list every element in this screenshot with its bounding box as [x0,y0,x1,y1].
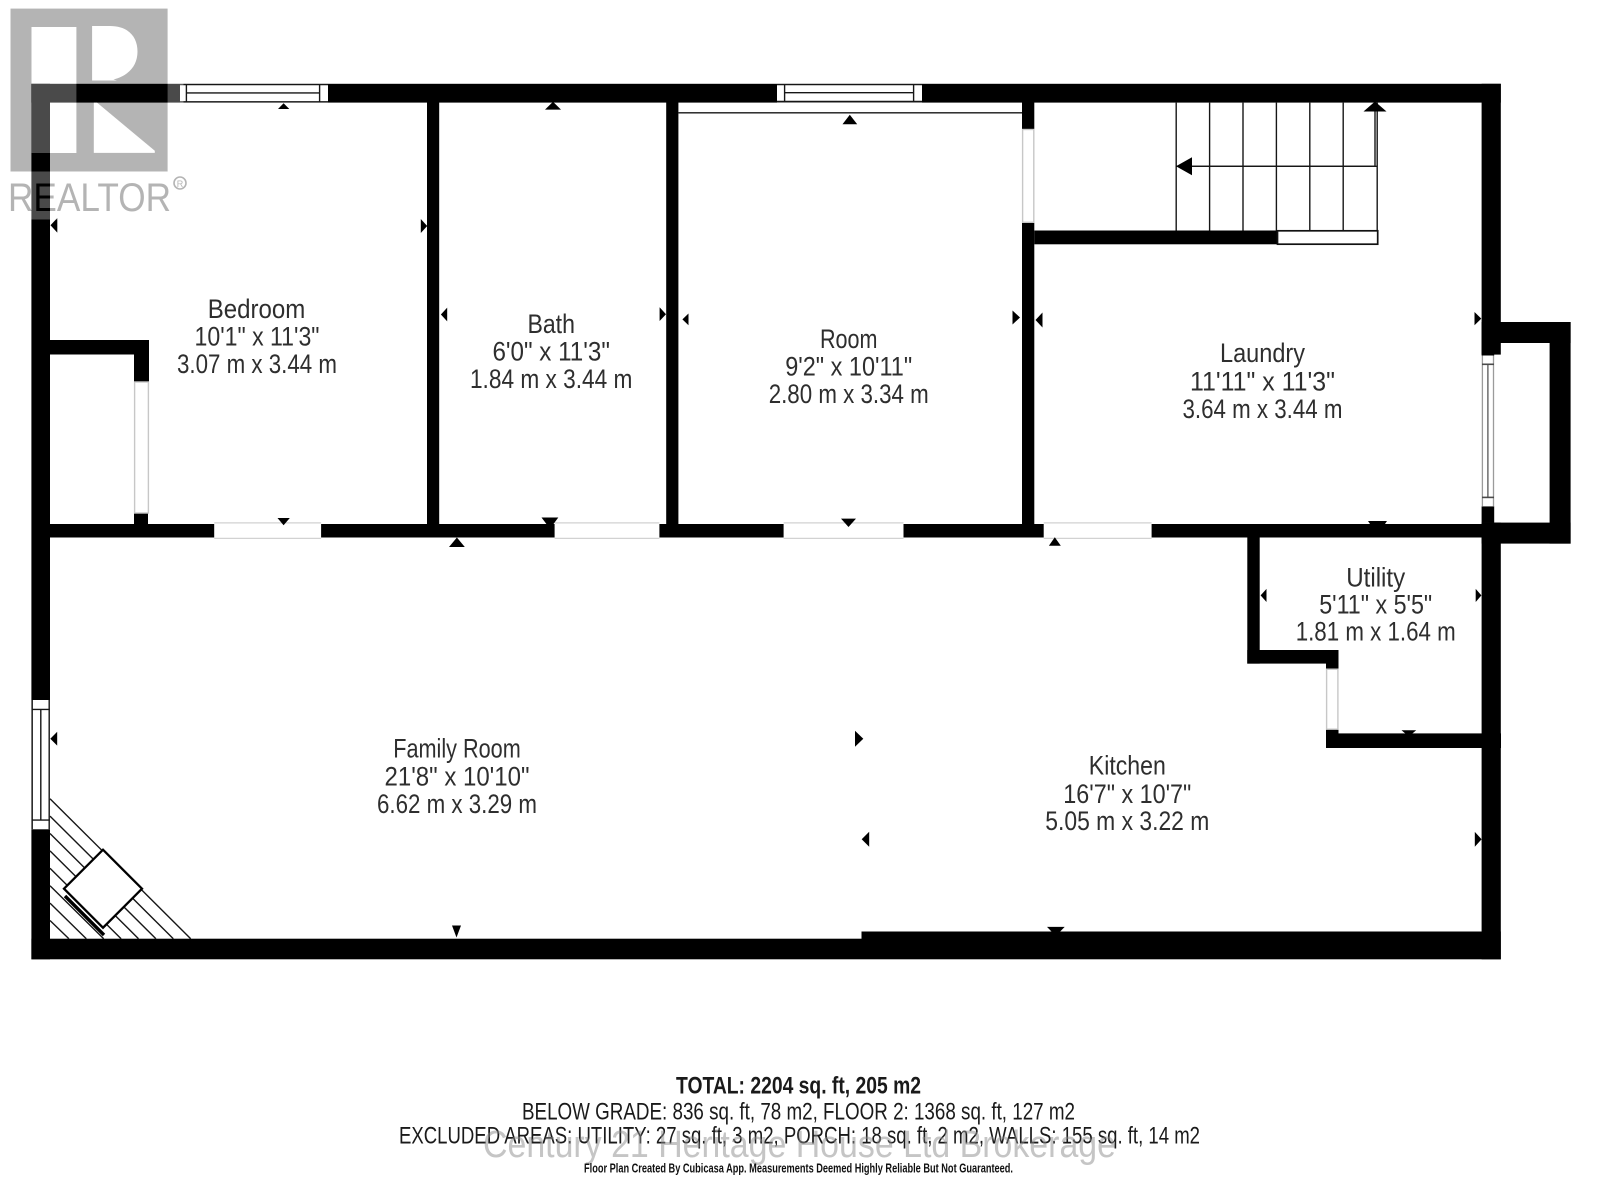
svg-text:R: R [177,179,184,189]
svg-text:Utility: Utility [1346,563,1405,593]
svg-text:5'11" x 5'5": 5'11" x 5'5" [1319,590,1432,620]
svg-text:Room: Room [820,324,878,354]
svg-text:Floor Plan Created By Cubicasa: Floor Plan Created By Cubicasa App. Meas… [584,1161,1013,1176]
svg-text:Kitchen: Kitchen [1089,751,1166,781]
svg-text:1.84 m x 3.44 m: 1.84 m x 3.44 m [470,364,633,394]
svg-text:2.80 m x 3.34 m: 2.80 m x 3.34 m [769,379,929,409]
svg-text:Bedroom: Bedroom [208,294,306,324]
svg-text:11'11" x 11'3": 11'11" x 11'3" [1190,367,1335,397]
svg-text:6.62 m x 3.29 m: 6.62 m x 3.29 m [377,789,537,819]
svg-text:3.64 m x 3.44 m: 3.64 m x 3.44 m [1183,394,1343,424]
svg-text:Laundry: Laundry [1220,338,1305,368]
svg-text:BELOW GRADE: 836 sq. ft, 78 m2: BELOW GRADE: 836 sq. ft, 78 m2, FLOOR 2:… [522,1099,1075,1126]
svg-text:21'8" x 10'10": 21'8" x 10'10" [385,762,530,792]
svg-text:1.81 m x 1.64 m: 1.81 m x 1.64 m [1296,617,1456,647]
svg-text:16'7" x 10'7": 16'7" x 10'7" [1063,779,1191,809]
svg-text:5.05 m x 3.22 m: 5.05 m x 3.22 m [1045,806,1209,836]
svg-text:3.07 m x 3.44 m: 3.07 m x 3.44 m [177,349,337,379]
svg-text:10'1" x 11'3": 10'1" x 11'3" [195,322,320,352]
svg-text:TOTAL: 2204 sq. ft, 205 m2: TOTAL: 2204 sq. ft, 205 m2 [676,1073,921,1100]
svg-text:9'2" x 10'11": 9'2" x 10'11" [785,352,912,382]
svg-text:REALTOR: REALTOR [8,176,171,220]
svg-text:Family Room: Family Room [393,734,521,764]
svg-text:Bath: Bath [527,309,575,339]
svg-text:6'0" x 11'3": 6'0" x 11'3" [492,337,610,367]
